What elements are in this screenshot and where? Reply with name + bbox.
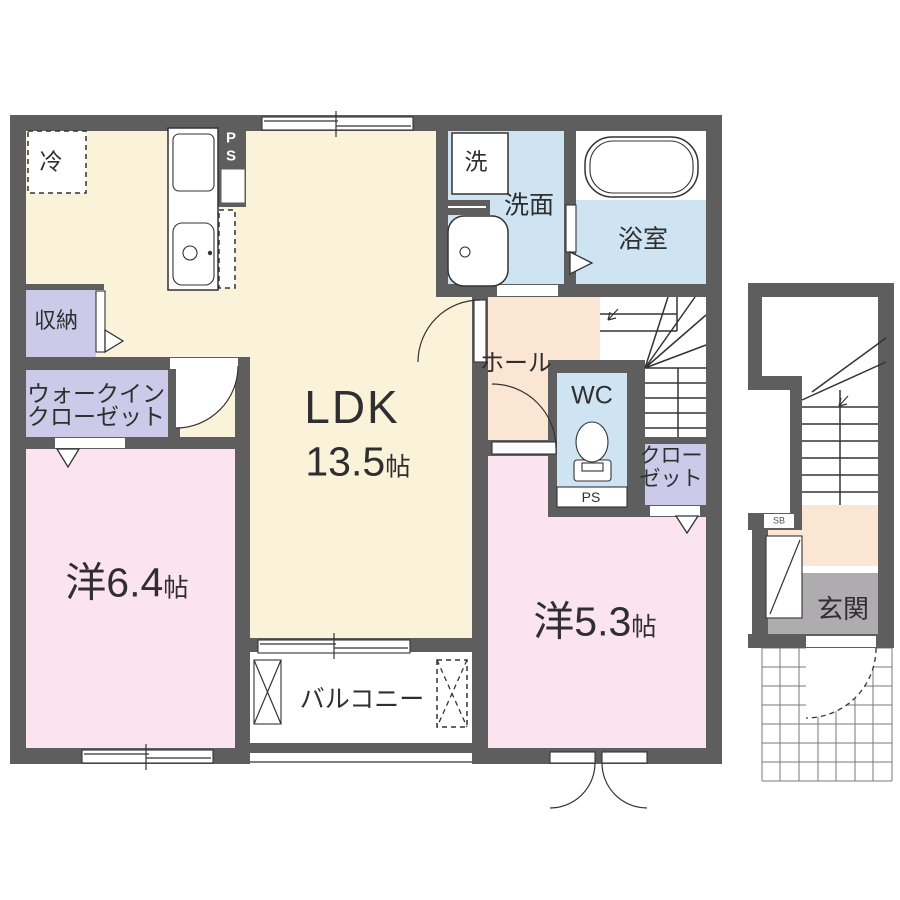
wic-label-line2: クローゼット bbox=[27, 406, 165, 429]
counter-extension bbox=[219, 210, 235, 288]
washbasin-icon bbox=[448, 216, 508, 286]
western64-label: 洋6.4帖 bbox=[65, 563, 188, 604]
hall-floor-2 bbox=[488, 373, 548, 440]
porch-tiles bbox=[762, 648, 892, 781]
western64-unit: 帖 bbox=[163, 575, 188, 603]
ldk-size-unit: 帖 bbox=[385, 454, 410, 482]
balcony-label: バルコニー bbox=[300, 688, 425, 713]
shoebox-icon bbox=[766, 536, 802, 618]
ldk-size-value: 13.5 bbox=[305, 439, 385, 485]
ps-kitchen-s: S bbox=[226, 149, 236, 164]
refrigerator-label: 冷 bbox=[40, 151, 63, 174]
western64-name: 洋6.4 bbox=[65, 560, 163, 606]
closet-label-line2: ゼット bbox=[640, 469, 703, 490]
ps-wc-label: PS bbox=[582, 490, 601, 504]
ldk-label: LDK bbox=[304, 384, 399, 430]
faucet-icon bbox=[183, 246, 197, 260]
closet-label-line1: クロー bbox=[640, 446, 703, 467]
stairs-lower-floor bbox=[645, 365, 706, 437]
toilet-icon bbox=[574, 422, 611, 481]
ps-duct-box bbox=[222, 170, 244, 202]
western53-unit: 帖 bbox=[631, 614, 656, 642]
ldk-size: 13.5帖 bbox=[305, 442, 410, 483]
storage-label: 収納 bbox=[34, 310, 78, 332]
wic-label-line1: ウォークイン bbox=[27, 383, 165, 406]
bathtub-icon bbox=[585, 137, 698, 197]
entry-door-opening bbox=[806, 636, 876, 647]
western53-label: 洋5.3帖 bbox=[533, 602, 656, 643]
entrance-label: 玄関 bbox=[817, 596, 869, 622]
drain-dot bbox=[208, 251, 212, 255]
floorplan-canvas: LDK 13.5帖 洋6.4帖 洋5.3帖 ウォークイン クローゼット 収納 冷… bbox=[0, 0, 900, 900]
western53-name: 洋5.3 bbox=[533, 599, 631, 645]
washroom-label: 洗面 bbox=[504, 194, 554, 219]
balcony-hatch-right bbox=[437, 660, 467, 727]
stove-icon bbox=[173, 134, 214, 191]
ps-kitchen-p: P bbox=[226, 131, 236, 146]
balcony-rail bbox=[250, 743, 472, 753]
washer-label: 洗 bbox=[465, 151, 488, 174]
shoebox-label: SB bbox=[773, 517, 785, 526]
balcony-hatch-left bbox=[254, 660, 281, 724]
bathroom-label: 浴室 bbox=[618, 228, 668, 253]
hall-label: ホール bbox=[480, 352, 552, 376]
wc-label: WC bbox=[571, 384, 613, 409]
washroom-door-opening bbox=[497, 285, 558, 296]
floorplan-drawing bbox=[0, 0, 900, 900]
balcony-rail-edge bbox=[250, 753, 472, 762]
